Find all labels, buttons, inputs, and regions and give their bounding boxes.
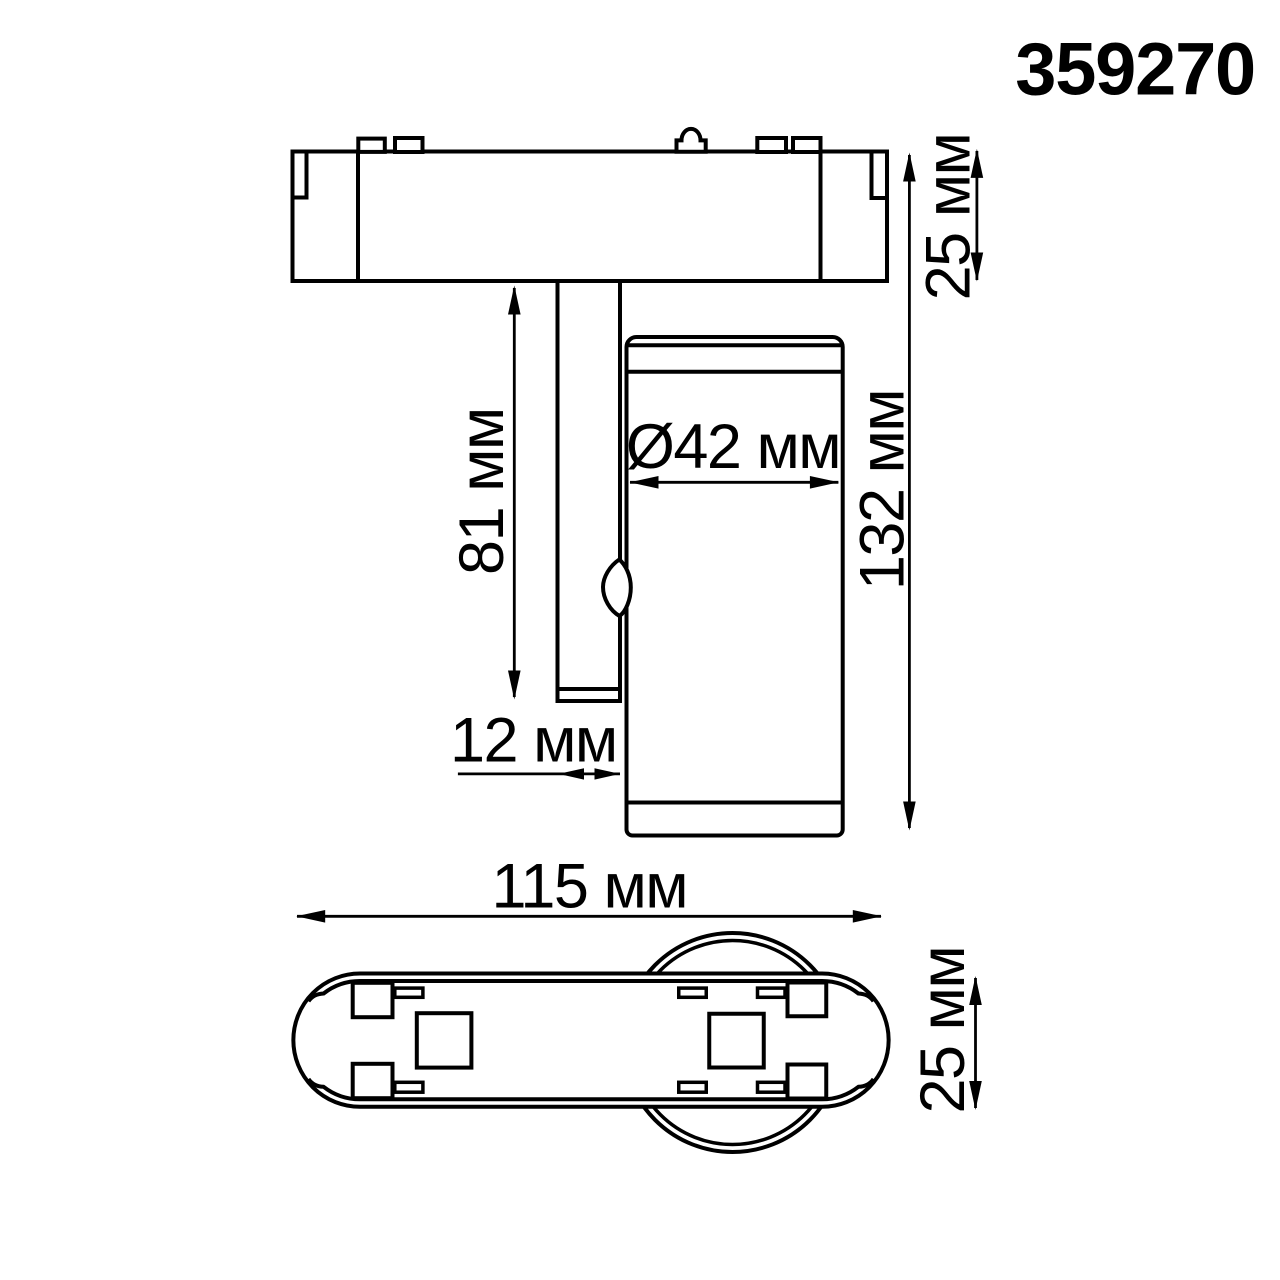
svg-text:81 мм: 81 мм [447, 408, 517, 575]
svg-text:25 мм: 25 мм [908, 947, 978, 1114]
svg-text:12 мм: 12 мм [450, 706, 617, 776]
svg-text:359270: 359270 [1015, 28, 1255, 111]
svg-text:115 мм: 115 мм [492, 852, 688, 922]
svg-text:25 мм: 25 мм [914, 134, 984, 301]
svg-text:132 мм: 132 мм [848, 390, 918, 590]
svg-text:Ø42 мм: Ø42 мм [626, 412, 840, 482]
